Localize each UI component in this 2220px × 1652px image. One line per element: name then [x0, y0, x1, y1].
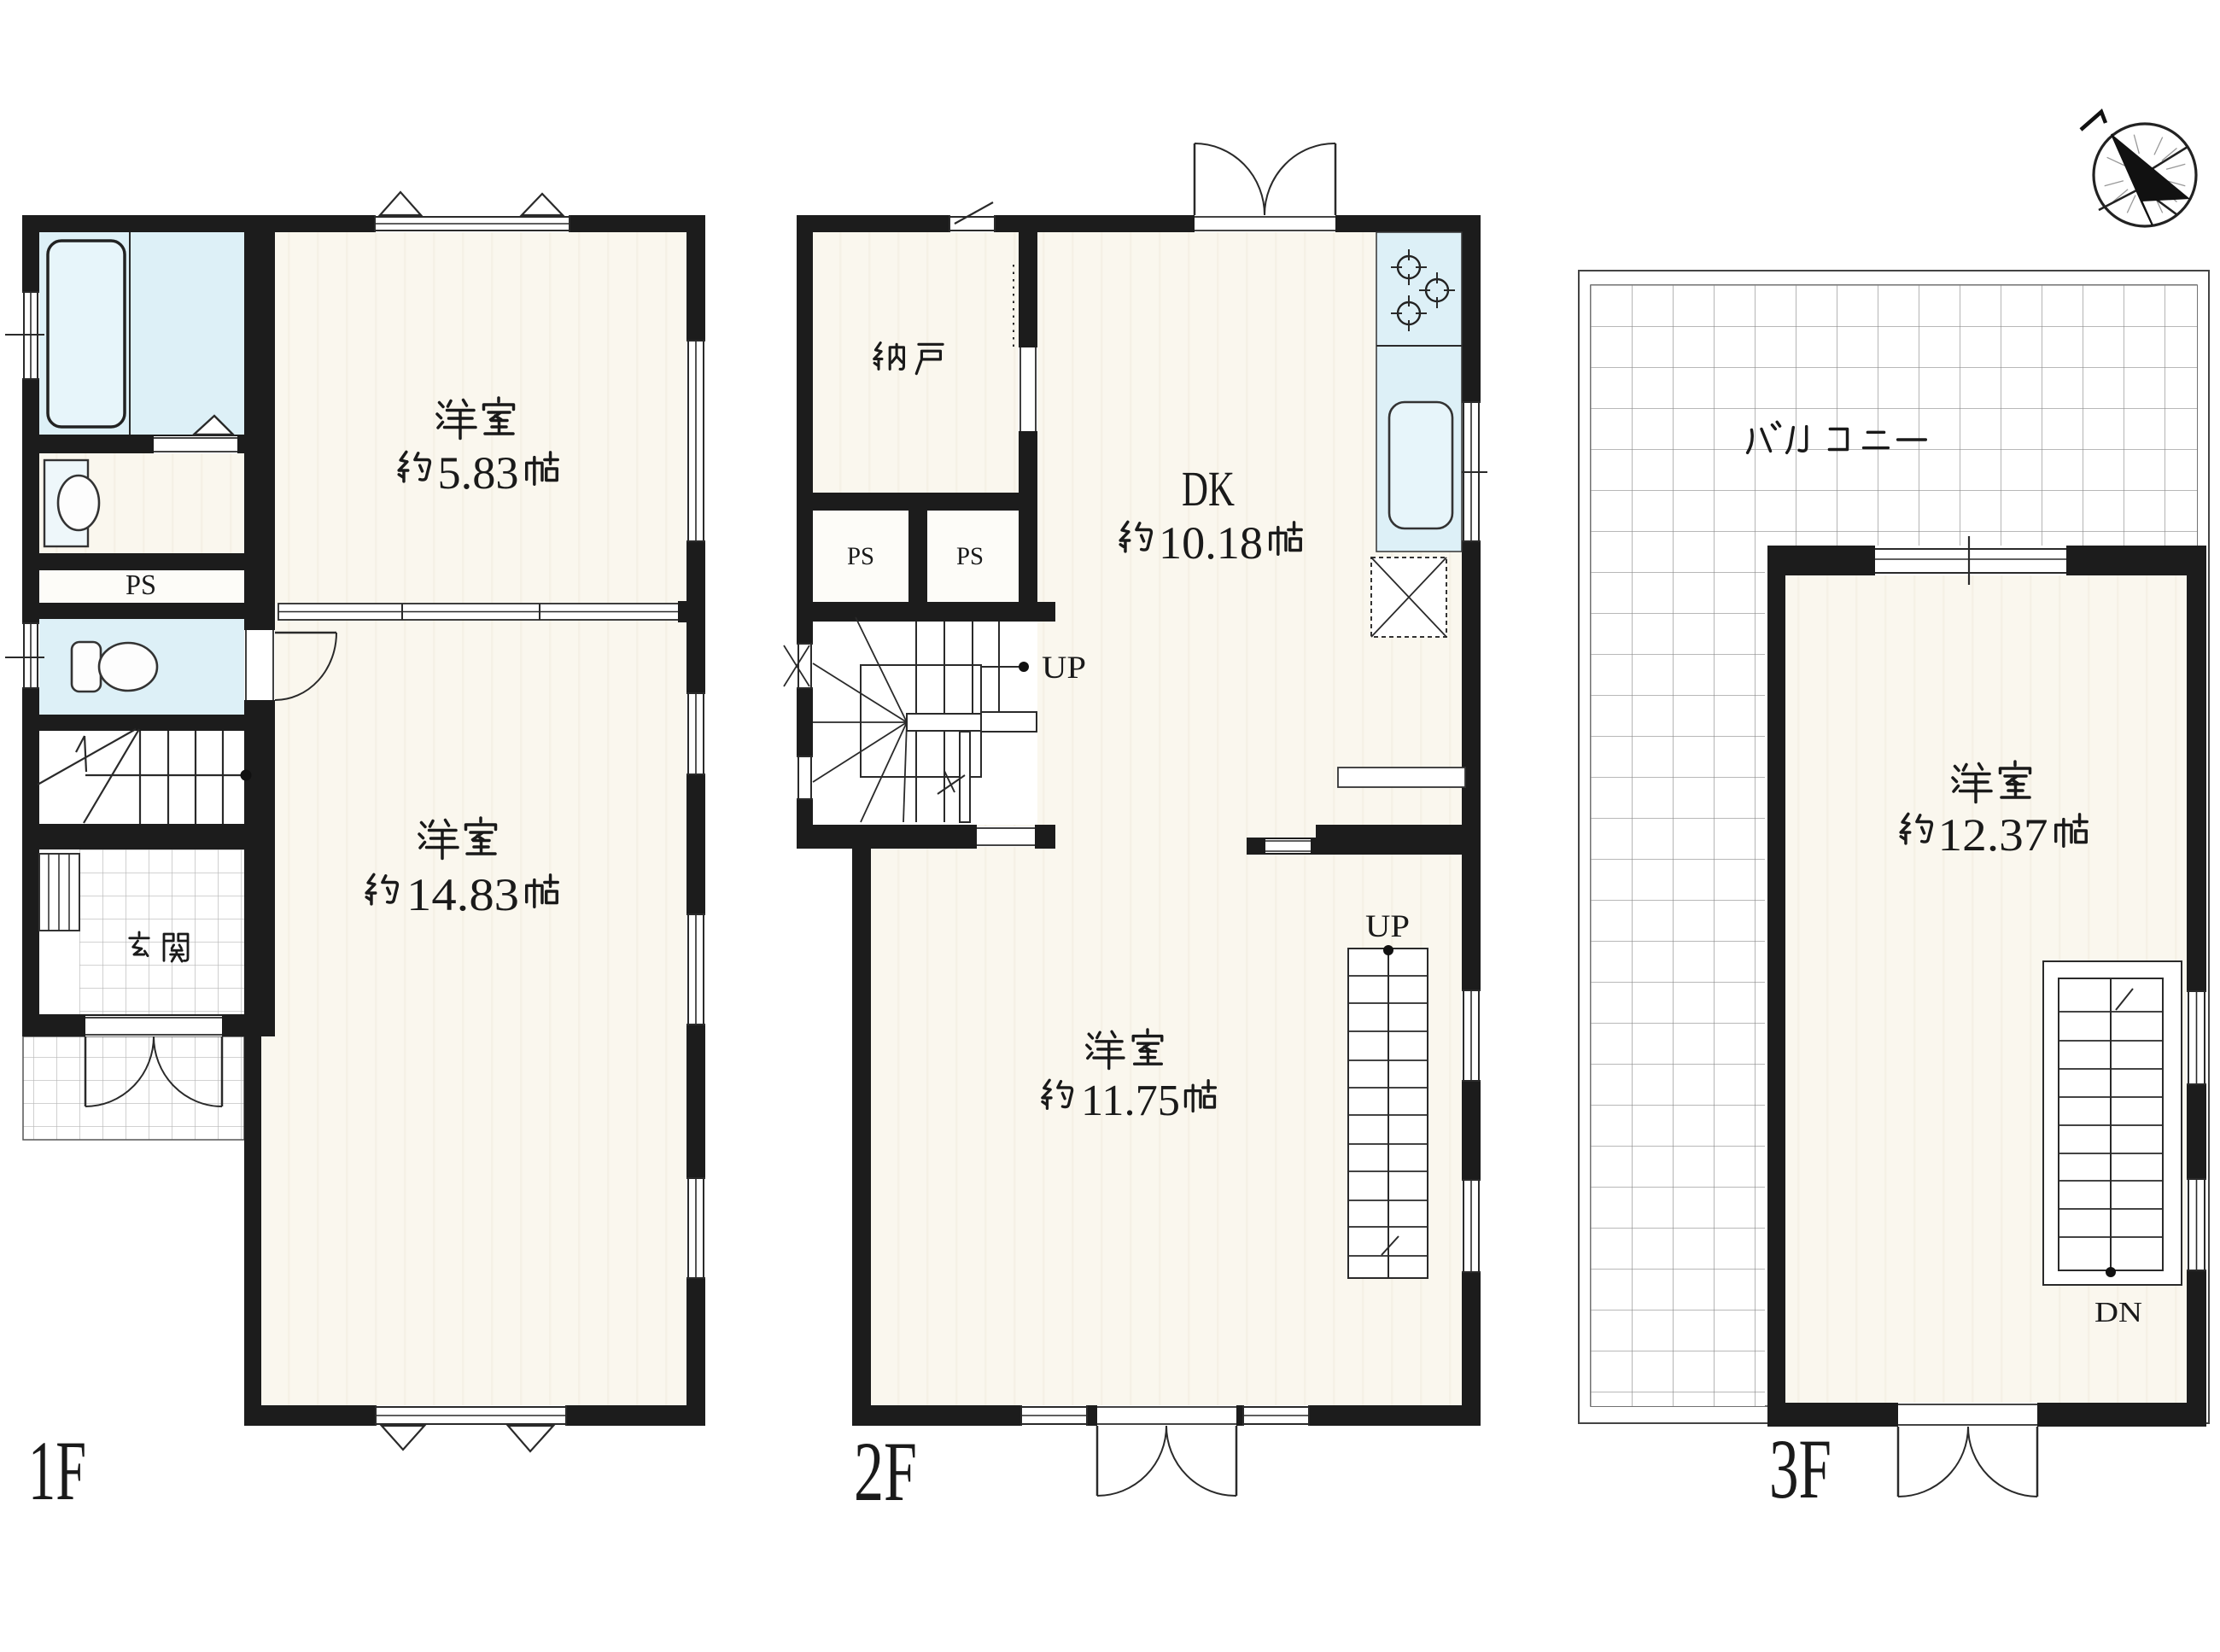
svg-text:DN: DN	[2094, 1297, 2142, 1328]
svg-text:3F: 3F	[1769, 1421, 1831, 1516]
svg-text:1F: 1F	[28, 1423, 86, 1518]
svg-text:PS: PS	[847, 542, 874, 570]
svg-text:PS: PS	[126, 569, 156, 601]
svg-text:UP: UP	[1365, 909, 1410, 944]
svg-text:14.83: 14.83	[406, 869, 519, 920]
svg-text:PS: PS	[956, 542, 984, 570]
svg-text:5.83: 5.83	[438, 447, 519, 499]
svg-text:2F: 2F	[854, 1424, 917, 1519]
svg-text:UP: UP	[1042, 651, 1086, 686]
svg-text:11.75: 11.75	[1081, 1077, 1180, 1125]
svg-text:10.18: 10.18	[1159, 517, 1263, 569]
svg-text:12.37: 12.37	[1938, 809, 2048, 861]
svg-text:DK: DK	[1182, 461, 1235, 517]
